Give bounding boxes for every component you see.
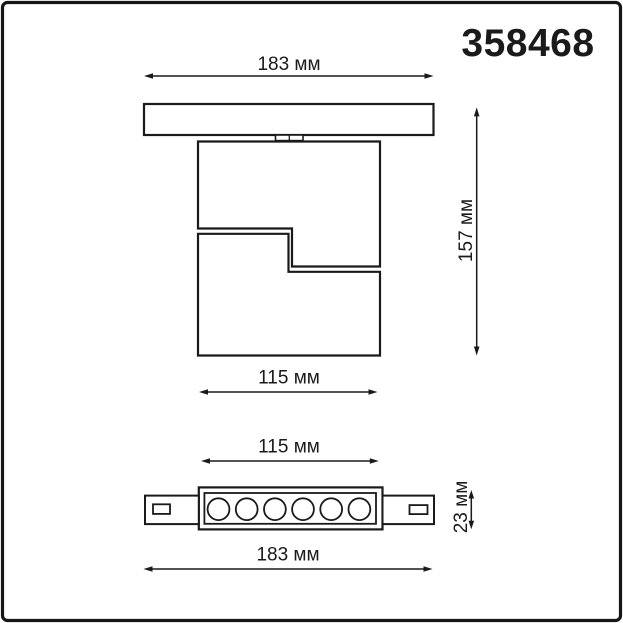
svg-text:157 мм: 157 мм xyxy=(456,199,477,262)
svg-text:115 мм: 115 мм xyxy=(258,368,320,389)
svg-text:23 мм: 23 мм xyxy=(451,481,472,534)
svg-text:115 мм: 115 мм xyxy=(258,437,320,458)
svg-text:183 мм: 183 мм xyxy=(257,54,320,75)
svg-text:358468: 358468 xyxy=(461,22,594,65)
svg-text:183 мм: 183 мм xyxy=(256,545,319,566)
